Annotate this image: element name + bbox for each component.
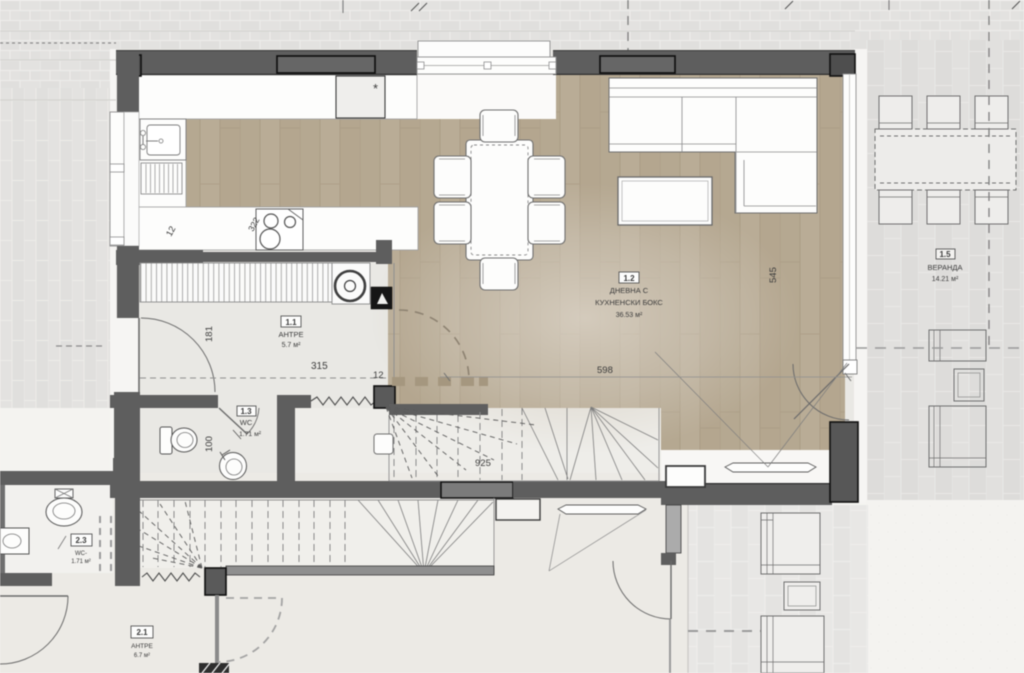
svg-text:WC-: WC- [75,551,87,557]
svg-text:2.3: 2.3 [75,536,87,545]
svg-text:1.5: 1.5 [939,250,951,259]
svg-text:14.21 м²: 14.21 м² [932,276,959,283]
svg-text:1.2: 1.2 [623,274,635,283]
svg-text:*: * [373,81,378,96]
svg-text:1.1: 1.1 [285,318,297,327]
svg-text:598: 598 [597,365,613,376]
svg-text:545: 545 [768,267,779,283]
svg-text:АНТРЕ: АНТРЕ [278,330,303,339]
svg-text:2.1: 2.1 [136,628,148,637]
svg-text:36.53 м²: 36.53 м² [616,312,643,319]
svg-text:АНТРЕ: АНТРЕ [131,643,153,650]
svg-text:100: 100 [204,436,215,452]
svg-text:6.7 м²: 6.7 м² [134,653,150,659]
svg-text:315: 315 [311,361,328,372]
svg-text:1.71 м²: 1.71 м² [71,559,90,565]
svg-text:925: 925 [475,458,491,469]
svg-text:КУХНЕНСКИ БОКС: КУХНЕНСКИ БОКС [595,298,663,307]
svg-text:ВЕРАНДА: ВЕРАНДА [927,263,962,272]
svg-text:WC: WC [240,418,253,427]
svg-text:ДНЕВНА С: ДНЕВНА С [610,286,649,295]
svg-text:5.7 м²: 5.7 м² [282,342,301,349]
svg-text:12: 12 [373,370,384,381]
svg-text:1.3: 1.3 [240,407,252,416]
svg-text:1.71 м²: 1.71 м² [239,431,262,438]
svg-text:181: 181 [204,326,215,342]
